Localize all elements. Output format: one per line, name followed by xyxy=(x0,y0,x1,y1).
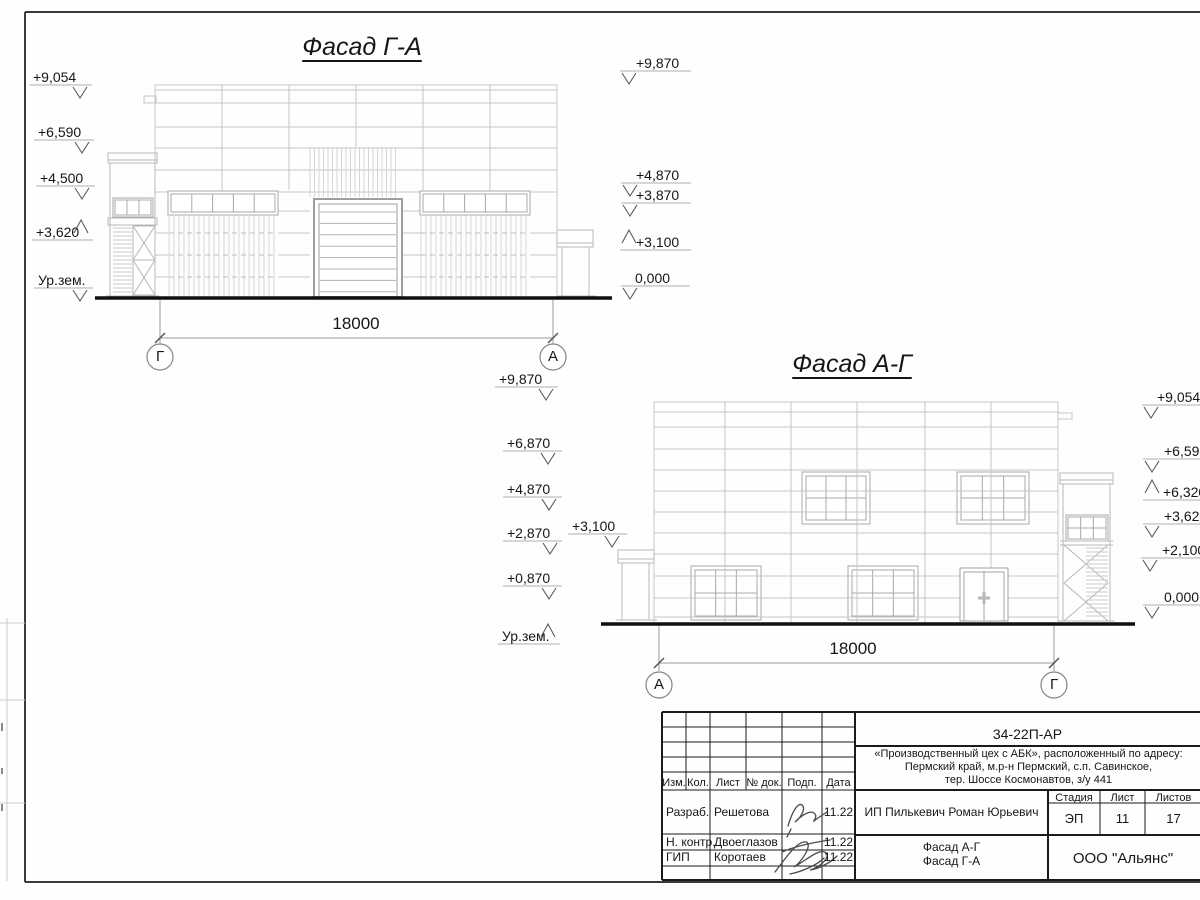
col-header-kol: Кол. xyxy=(686,777,710,790)
project-name-line3: тер. Шоссе Космонавтов, з/у 441 xyxy=(859,774,1198,787)
elevation-mark-label: +4,870 xyxy=(507,481,550,497)
project-name-line1: «Производственный цех с АБК», расположен… xyxy=(859,748,1198,761)
facade-ag-axis-bubbles xyxy=(646,672,1067,698)
col-header-podp: Подп. xyxy=(782,777,822,790)
row-role-0: Разраб. xyxy=(666,806,709,820)
elevation-mark-label: +9,054 xyxy=(33,69,76,85)
facade-ag-canopy xyxy=(616,550,657,620)
frame-left-stub-lines xyxy=(0,618,25,881)
axis-marker-ga-right: А xyxy=(539,348,567,365)
elevation-mark-label: +6,590 xyxy=(1164,443,1200,459)
elevation-mark-label: +0,870 xyxy=(507,570,550,586)
sheets-label: Листов xyxy=(1145,792,1200,805)
facade-ga-title: Фасад Г-А xyxy=(282,33,442,62)
facade-ga-stair-tower xyxy=(106,153,159,296)
facade-ag-dimension-label: 18000 xyxy=(813,639,893,659)
row-role-1: Н. контр. xyxy=(666,836,716,850)
elevation-mark-label: +2,100 xyxy=(1162,542,1200,558)
elevation-mark-label: +9,870 xyxy=(636,55,679,71)
elevation-mark-label: +3,100 xyxy=(636,234,679,250)
elevation-mark-label: +9,054 xyxy=(1157,389,1200,405)
row-date-0: 11.22 xyxy=(822,806,855,820)
elevation-mark-label: +3,620 xyxy=(36,224,79,240)
col-header-doc: № док. xyxy=(746,777,782,790)
facade-ga-gate xyxy=(314,199,402,297)
client-name: ИП Пилькевич Роман Юрьевич xyxy=(857,806,1046,820)
sheet-name-line2: Фасад Г-А xyxy=(857,855,1046,869)
row-name-1: Двоеглазов xyxy=(714,836,778,850)
row-date-2: 11.22 xyxy=(822,851,855,865)
elevation-mark-label: +4,500 xyxy=(40,170,83,186)
company-name: ООО "Альянс" xyxy=(1048,850,1198,867)
axis-marker-ag-right: Г xyxy=(1040,676,1068,693)
elevation-mark-label: Ур.зем. xyxy=(38,272,86,288)
facade-ag-stair-tower xyxy=(1058,473,1115,621)
elevation-mark-label: +3,870 xyxy=(636,187,679,203)
elevation-mark-label: Ур.зем. xyxy=(502,628,550,644)
project-name-line2: Пермский край, м.р-н Пермский, с.п. Сави… xyxy=(859,761,1198,774)
elevation-mark-label: +9,870 xyxy=(499,371,542,387)
facade-ag-title: Фасад А-Г xyxy=(772,350,932,379)
stage-value: ЭП xyxy=(1048,812,1100,827)
facade-ag-stair-treads xyxy=(1086,548,1108,616)
row-role-2: ГИП xyxy=(666,851,690,865)
col-header-list: Лист xyxy=(710,777,746,790)
elevation-mark-symbols xyxy=(29,71,1200,644)
stage-label: Стадия xyxy=(1048,792,1100,805)
facade-ga-stair-treads xyxy=(113,228,132,292)
sheets-value: 17 xyxy=(1145,812,1200,827)
col-header-izm: Изм. xyxy=(662,777,686,790)
drawing-sheet: Фасад Г-А Фасад А-Г 18000 18000 Г А А Г … xyxy=(0,0,1200,900)
elevation-mark-label: +6,590 xyxy=(38,124,81,140)
facade-ga-axis-bubbles xyxy=(147,344,566,370)
row-name-2: Коротаев xyxy=(714,851,766,865)
elevation-mark-label: 0,000 xyxy=(635,270,670,286)
axis-marker-ag-left: А xyxy=(645,676,673,693)
elevation-mark-label: +3,620 xyxy=(1164,508,1200,524)
col-header-data: Дата xyxy=(822,777,855,790)
sheet-label: Лист xyxy=(1100,792,1145,805)
sheet-value: 11 xyxy=(1100,812,1145,827)
elevation-mark-label: +2,870 xyxy=(507,525,550,541)
facade-ga-annex xyxy=(557,230,596,296)
sheet-name-line1: Фасад А-Г xyxy=(857,841,1046,855)
axis-marker-ga-left: Г xyxy=(146,348,174,365)
elevation-mark-label: +4,870 xyxy=(636,167,679,183)
row-name-0: Решетова xyxy=(714,806,769,820)
facade-ga-dimension-label: 18000 xyxy=(316,314,396,334)
elevation-mark-label: +3,100 xyxy=(572,518,615,534)
elevation-mark-label: +6,870 xyxy=(507,435,550,451)
elevation-mark-label: +6,320 xyxy=(1163,484,1200,500)
doc-code: 34-22П-АР xyxy=(857,726,1198,742)
elevation-mark-label: 0,000 xyxy=(1164,589,1199,605)
row-date-1: 11.22 xyxy=(822,836,855,850)
